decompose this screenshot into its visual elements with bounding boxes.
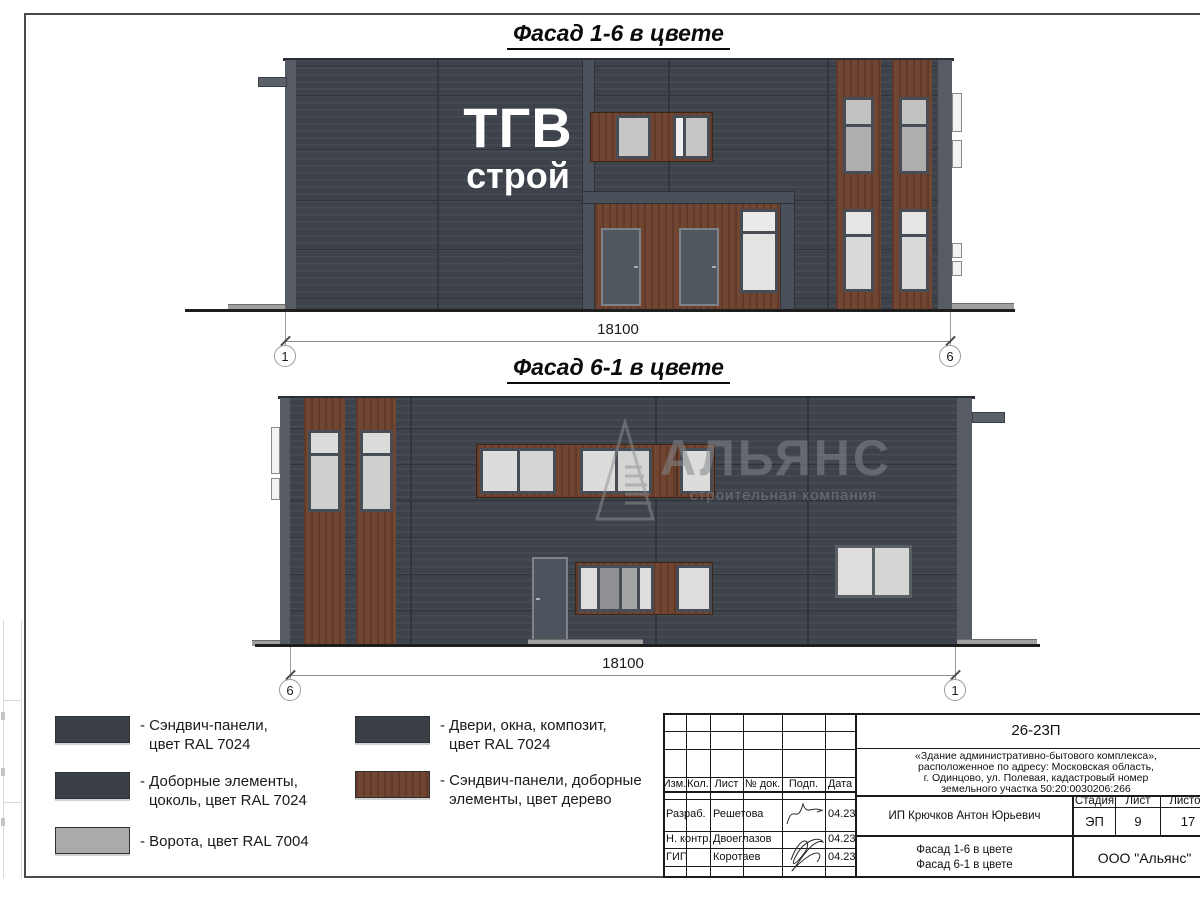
window-glass (640, 568, 651, 609)
title-block-line (663, 799, 856, 800)
window-glass (619, 118, 648, 156)
legend-label: - Сэндвич-панели, цвет RAL 7024 (140, 716, 268, 754)
title-block-line (663, 749, 856, 750)
column-header-data: Дата (825, 777, 855, 791)
window-glass (600, 568, 619, 609)
frame-sidebar (3, 620, 4, 878)
window-glass (676, 118, 683, 156)
dimension-line (290, 675, 956, 676)
signer-role: Н. контр. (666, 833, 711, 845)
stage-value: ЭП (1074, 808, 1115, 835)
window (680, 448, 713, 494)
legend-label: - Сэндвич-панели, доборные элементы, цве… (440, 771, 642, 809)
window (360, 430, 393, 512)
column-header-podp: Подп. (782, 777, 825, 791)
window (843, 97, 874, 174)
window-glass (583, 451, 615, 491)
panel-joint (827, 60, 829, 310)
legend-swatch-gates (55, 827, 130, 854)
legend-swatch-sandwich-panels (55, 716, 130, 743)
door-handle (634, 266, 638, 268)
title-block-line (663, 731, 856, 732)
window-glass (683, 451, 710, 491)
facade1-downpipe (952, 261, 962, 276)
title-block-line (663, 866, 856, 867)
window (480, 448, 556, 494)
signer-name: Коротаев (713, 851, 761, 863)
frame-sidebar (1, 818, 5, 826)
window (899, 209, 929, 292)
legend-swatch-trim-elements (55, 772, 130, 799)
facade1-corner-trim-left (285, 60, 296, 310)
title-block-line (663, 791, 856, 793)
building-logo-line2: строй (448, 158, 588, 194)
window (616, 115, 651, 159)
frame-sidebar (21, 620, 22, 878)
panel-joint (410, 398, 412, 644)
axis-marker: 1 (944, 679, 966, 701)
window (835, 545, 912, 598)
facade2-downpipe (271, 427, 280, 474)
window-glass (520, 451, 554, 491)
facade1-canopy (582, 191, 795, 204)
window-glass (622, 568, 637, 609)
facade1-ground-line (185, 309, 1015, 312)
facade2-ground-line (255, 644, 1040, 647)
facade1-roof-pipe (258, 77, 287, 87)
window (580, 448, 652, 494)
window-glass (846, 212, 871, 234)
axis-marker: 6 (279, 679, 301, 701)
signer-role: ГИП (666, 851, 688, 863)
facade2-door (532, 557, 568, 643)
facade2-downpipe (271, 478, 280, 500)
window-glass (902, 237, 926, 289)
window (899, 97, 929, 174)
dimension-line (285, 341, 951, 342)
window (676, 565, 712, 612)
window-glass (902, 212, 926, 234)
window-glass (363, 433, 390, 453)
window-glass (902, 127, 926, 171)
window-glass (743, 234, 775, 290)
window-glass (846, 237, 871, 289)
facade1-downpipe (952, 140, 962, 168)
frame-sidebar (3, 700, 21, 701)
window (740, 209, 778, 293)
stage-label: Стадия (1074, 795, 1115, 807)
sheet-label: Лист (1116, 795, 1160, 807)
facade2-dimension-label: 18100 (290, 655, 956, 672)
window-glass (618, 451, 650, 491)
window-glass (686, 118, 707, 156)
frame-top-border (24, 13, 1200, 15)
facade2-corner-trim-right (957, 398, 972, 644)
project-description: «Здание административно-бытового комплек… (857, 751, 1200, 795)
signer-date: 04.23 (828, 808, 856, 820)
facade1-downpipe (952, 243, 962, 258)
title-block-line (663, 831, 856, 832)
window-glass (902, 100, 926, 124)
signer-name: Двоеглазов (713, 833, 771, 845)
frame-sidebar (1, 712, 5, 720)
window-glass (846, 100, 871, 124)
title-block-line (710, 713, 711, 878)
title-block-line (663, 848, 856, 849)
window-glass (846, 127, 871, 171)
signature-scribble (783, 796, 825, 874)
facade2-corner-trim-left (280, 398, 290, 644)
legend-swatch-doors-windows (355, 716, 430, 743)
band-seam (676, 444, 678, 498)
legend-label: - Доборные элементы, цоколь, цвет RAL 70… (140, 772, 307, 810)
frame-sidebar (1, 768, 5, 776)
window (308, 430, 341, 512)
facade1-corner-trim-right (938, 60, 952, 310)
frame-sidebar (3, 802, 21, 803)
door-handle (536, 598, 540, 600)
window-glass (743, 212, 775, 231)
panel-joint (437, 60, 439, 310)
signer-date: 04.23 (828, 833, 856, 845)
legend-swatch-wood (355, 771, 430, 798)
panel-joint (807, 398, 809, 644)
building-logo: ТГВ строй (448, 100, 588, 194)
sheets-value: 17 (1161, 808, 1200, 835)
window-glass (311, 456, 338, 509)
sheet-value: 9 (1116, 808, 1160, 835)
legend-label: - Ворота, цвет RAL 7004 (140, 832, 309, 851)
window-glass (311, 433, 338, 453)
signer-name: Решетова (713, 808, 763, 820)
window (843, 209, 874, 292)
organization-name: ООО "Альянс" (1074, 837, 1200, 878)
client-name: ИП Крючков Антон Юрьевич (857, 797, 1072, 835)
frame-left-border (24, 13, 26, 878)
facade1-title: Фасад 1-6 в цвете (285, 20, 952, 47)
window (578, 565, 654, 612)
window-glass (875, 548, 909, 595)
window (673, 115, 710, 159)
signer-date: 04.23 (828, 851, 856, 863)
title-block-line (857, 748, 1200, 749)
facade2-title: Фасад 6-1 в цвете (285, 354, 952, 381)
document-number: 26-23П (857, 713, 1200, 748)
legend-label: - Двери, окна, композит, цвет RAL 7024 (440, 716, 607, 754)
window-glass (363, 456, 390, 509)
facade1-downpipe (952, 93, 962, 132)
column-header-izm: Изм. (663, 777, 686, 791)
window-glass (838, 548, 872, 595)
sheets-label: Листов (1161, 795, 1200, 807)
facade1-dimension-label: 18100 (285, 321, 951, 338)
column-header-doc: № док. (743, 777, 782, 791)
title-block-line (825, 713, 826, 878)
sheet-subject: Фасад 1-6 в цвете Фасад 6-1 в цвете (857, 837, 1072, 878)
door-handle (712, 266, 716, 268)
drawing-sheet: Фасад 1-6 в цвете ТГВ строй (0, 0, 1200, 900)
window-glass (483, 451, 517, 491)
column-header-list: Лист (710, 777, 743, 791)
facade2-roof-pipe (972, 412, 1005, 423)
facade1-canopy-post (780, 203, 795, 310)
signer-role: Разраб. (666, 808, 706, 820)
building-logo-line1: ТГВ (448, 100, 588, 156)
window-glass (581, 568, 597, 609)
column-header-kol: Кол. (686, 777, 710, 791)
window-glass (679, 568, 709, 609)
